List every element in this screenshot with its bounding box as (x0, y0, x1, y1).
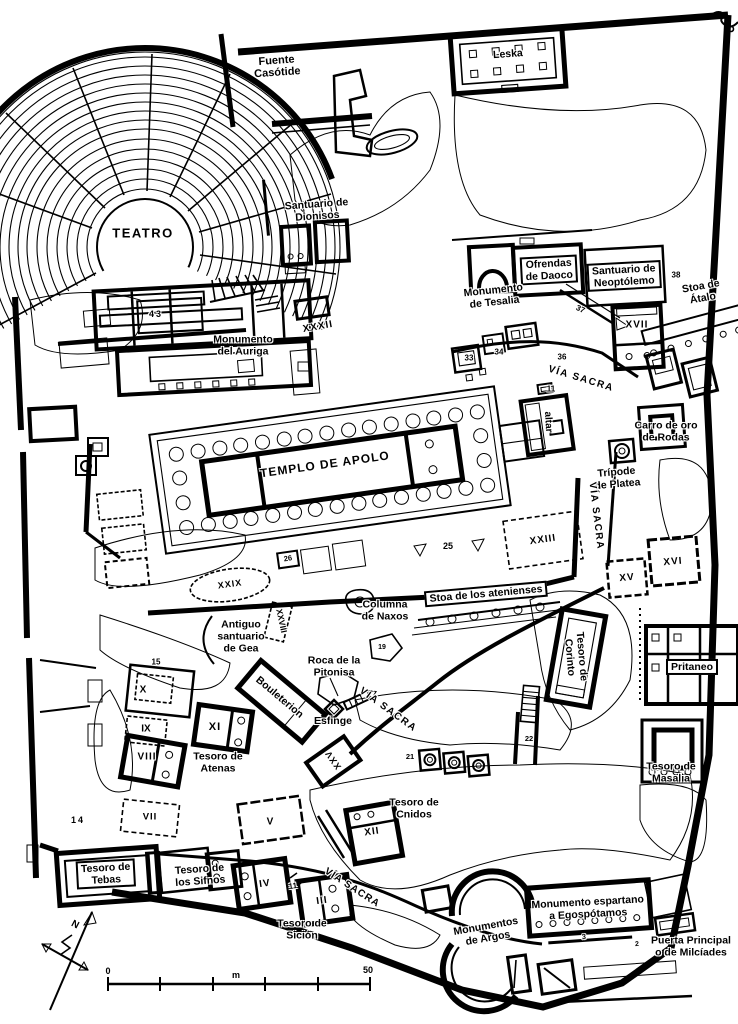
halos-area (188, 540, 366, 606)
treasuries-west (40, 660, 360, 844)
tesoro-corinto-building (546, 609, 605, 707)
spartan-monument (526, 880, 652, 944)
switchback-monuments (97, 490, 149, 588)
boundary-wall (15, 15, 728, 1007)
carro-de-oro (639, 405, 686, 450)
stoa-atenienses-structure (412, 602, 560, 635)
esfinge-monument (325, 687, 378, 718)
via-sacra-upper (450, 323, 638, 383)
tripode-platea (609, 439, 635, 463)
theater (0, 48, 340, 442)
cnidos-group (318, 685, 540, 863)
altar-de-apolo (519, 381, 574, 455)
compass-rose (42, 912, 96, 1010)
xxiii-area (414, 511, 583, 569)
dionisos-buildings (264, 176, 350, 275)
leska-building (450, 28, 566, 96)
east-buildings (607, 536, 738, 782)
delphi-site-plan: TEATROFuenteCasótideLeskaSantuario deDio… (0, 0, 738, 1024)
scale-bar (108, 977, 370, 991)
xxxi-monuments (29, 407, 108, 475)
site-plan-drawing (0, 0, 738, 1024)
rocky-texture (30, 92, 712, 948)
stoa-atalo (612, 304, 738, 397)
temple-of-apollo (149, 381, 550, 554)
